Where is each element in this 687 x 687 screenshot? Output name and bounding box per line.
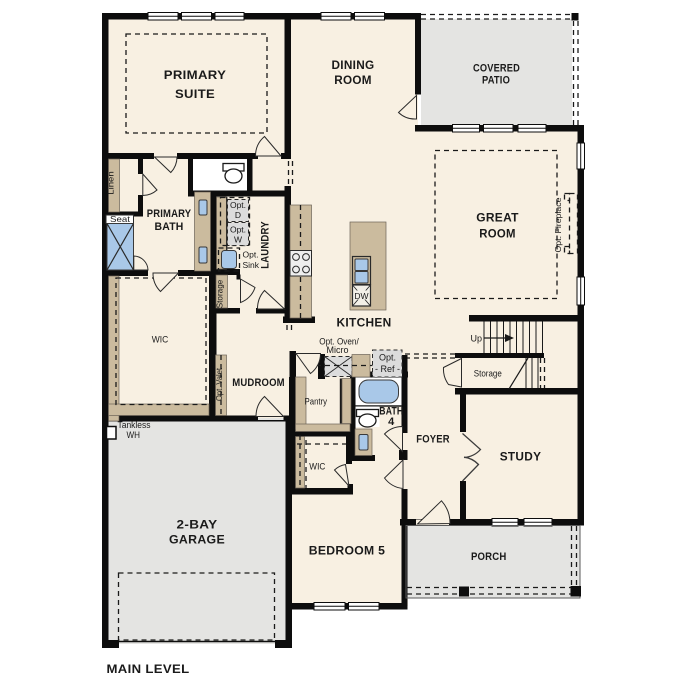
svg-text:GREAT: GREAT [476,211,519,225]
svg-text:4: 4 [388,416,395,428]
svg-text:Storage: Storage [214,279,224,308]
svg-text:LAUNDRY: LAUNDRY [260,221,272,269]
svg-text:Opt.: Opt. [230,200,246,210]
svg-text:Opt.: Opt. [243,250,259,260]
svg-text:WIC: WIC [309,462,325,472]
svg-text:Tankless: Tankless [118,420,151,430]
svg-text:Seat: Seat [110,214,131,224]
svg-text:Up: Up [471,334,483,344]
svg-text:2-BAY: 2-BAY [177,518,218,532]
svg-text:BATH: BATH [155,221,184,233]
svg-text:WH: WH [127,430,141,440]
svg-text:BEDROOM 5: BEDROOM 5 [309,544,386,558]
svg-text:MAIN LEVEL: MAIN LEVEL [107,662,190,676]
svg-text:Storage: Storage [474,369,502,379]
svg-text:Opt.: Opt. [230,225,246,235]
svg-text:- Ref -: - Ref - [375,364,400,374]
svg-text:MUDROOM: MUDROOM [232,377,285,389]
svg-text:Micro: Micro [327,345,349,355]
svg-text:KITCHEN: KITCHEN [337,316,392,330]
svg-text:PORCH: PORCH [471,551,507,563]
svg-text:FOYER: FOYER [416,434,450,446]
svg-text:PATIO: PATIO [482,75,510,87]
svg-text:GARAGE: GARAGE [169,533,225,547]
svg-text:WIC: WIC [152,335,169,345]
svg-text:COVERED: COVERED [473,63,520,75]
svg-text:PRIMARY: PRIMARY [164,68,227,82]
svg-text:ROOM: ROOM [479,227,516,241]
svg-text:Opt. Valet: Opt. Valet [214,367,224,401]
svg-text:Pantry: Pantry [305,397,328,407]
svg-text:Linen: Linen [106,171,116,195]
svg-text:Opt.: Opt. [379,353,396,363]
svg-text:W: W [234,235,242,245]
svg-text:STUDY: STUDY [500,450,542,464]
svg-text:PRIMARY: PRIMARY [147,208,192,220]
svg-text:DINING: DINING [332,58,375,72]
svg-text:Opt. Fireplace: Opt. Fireplace [553,197,563,252]
svg-text:DW: DW [354,291,368,301]
svg-text:D: D [235,210,241,220]
svg-text:SUITE: SUITE [175,87,215,101]
svg-text:Sink: Sink [243,260,260,270]
svg-text:ROOM: ROOM [334,73,372,87]
